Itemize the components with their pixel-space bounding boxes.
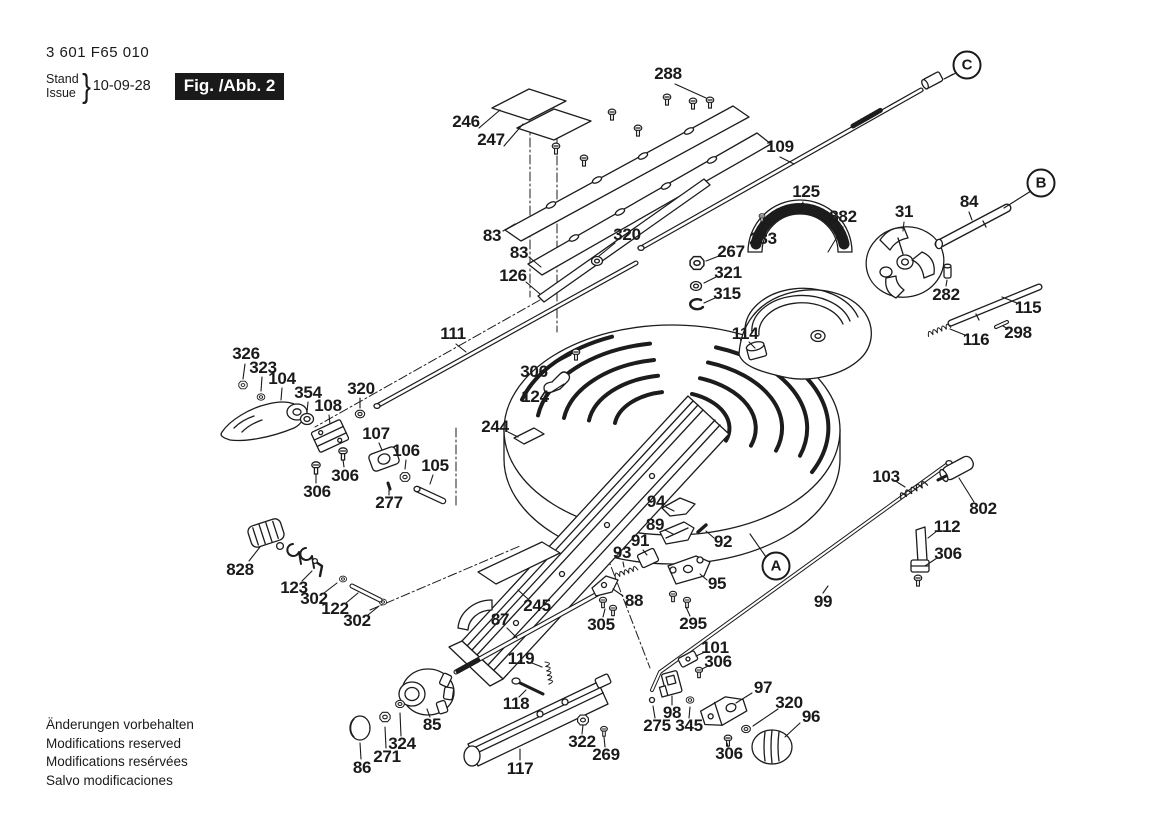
- reference-circle-B: B: [1027, 169, 1056, 198]
- part-callout-306: 306: [520, 362, 547, 382]
- part-callout-320: 320: [613, 225, 640, 245]
- part-callout-302: 302: [343, 611, 370, 631]
- part-callout-99: 99: [814, 592, 832, 612]
- part-callout-306: 306: [331, 466, 358, 486]
- notice-de: Änderungen vorbehalten: [46, 716, 194, 735]
- part-callout-87: 87: [491, 610, 509, 630]
- leader-line: [249, 547, 260, 561]
- leader-line: [307, 402, 308, 412]
- part-callout-83: 83: [483, 226, 501, 246]
- part-callout-306: 306: [715, 744, 742, 764]
- leader-line: [753, 709, 778, 726]
- leader-line: [243, 364, 245, 379]
- part-callout-320: 320: [775, 693, 802, 713]
- part-callout-106: 106: [392, 441, 419, 461]
- figure-label: Fig. /Abb. 2: [175, 73, 285, 100]
- reference-circle-A: A: [762, 552, 791, 581]
- leader-line: [281, 388, 282, 400]
- part-callout-105: 105: [421, 456, 448, 476]
- leader-line: [785, 723, 800, 737]
- notice-fr: Modifications resérvées: [46, 753, 194, 772]
- part-callout-305: 305: [587, 615, 614, 635]
- brace-glyph: }: [82, 67, 91, 105]
- exploded-diagram-artwork: [0, 0, 1169, 826]
- part-callout-115: 115: [1015, 298, 1042, 318]
- title-block: 3 601 F65 010 Stand Issue }10-09-28Fig. …: [46, 44, 284, 103]
- fastener-stack: [690, 257, 704, 310]
- part-callout-345: 345: [675, 716, 702, 736]
- modification-notices: Änderungen vorbehalten Modifications res…: [46, 716, 194, 790]
- part-callout-282: 282: [932, 285, 959, 305]
- part-callout-244: 244: [481, 417, 508, 437]
- part-callout-315: 315: [713, 284, 740, 304]
- part-callout-108: 108: [314, 396, 341, 416]
- part-callout-320: 320: [347, 379, 374, 399]
- part-callout-306: 306: [934, 544, 961, 564]
- leader-line: [360, 743, 361, 759]
- document-part-number: 3 601 F65 010: [46, 44, 284, 61]
- part-callout-321: 321: [714, 263, 741, 283]
- part-callout-104: 104: [268, 369, 295, 389]
- rod-109: [638, 71, 943, 250]
- leader-line: [1004, 191, 1031, 208]
- part-callout-103: 103: [872, 467, 899, 487]
- reference-circle-C: C: [953, 51, 982, 80]
- part-callout-295: 295: [679, 614, 706, 634]
- part-callout-111: 111: [440, 324, 466, 344]
- part-callout-97: 97: [754, 678, 772, 698]
- part-callout-85: 85: [423, 715, 441, 735]
- part-callout-107: 107: [362, 424, 389, 444]
- issue-date: 10-09-28: [93, 78, 151, 94]
- part-callout-109: 109: [766, 137, 793, 157]
- part-callout-96: 96: [802, 707, 820, 727]
- leader-line: [329, 415, 330, 424]
- leader-line: [944, 73, 956, 79]
- part-callout-88: 88: [625, 591, 643, 611]
- part-callout-802: 802: [969, 499, 996, 519]
- part-callout-298: 298: [1004, 323, 1031, 343]
- part-callout-86: 86: [353, 758, 371, 778]
- leader-line: [504, 124, 523, 146]
- part-callout-31: 31: [895, 202, 913, 222]
- part-callout-277: 277: [375, 493, 402, 513]
- parts-diagram-page: 2882462478383126320109125882283318428211…: [0, 0, 1169, 826]
- part-callout-275: 275: [643, 716, 670, 736]
- part-callout-112: 112: [934, 517, 961, 537]
- part-callout-93: 93: [613, 543, 631, 563]
- leader-line: [456, 344, 466, 352]
- part-callout-126: 126: [499, 266, 526, 286]
- part-callout-124: 124: [521, 387, 548, 407]
- notice-en: Modifications reserved: [46, 735, 194, 754]
- part-callout-306: 306: [704, 652, 731, 672]
- part-callout-125: 125: [792, 182, 819, 202]
- part-callout-118: 118: [503, 694, 530, 714]
- part-callout-83: 83: [510, 243, 528, 263]
- part-callout-114: 114: [732, 324, 759, 344]
- leader-line: [261, 377, 262, 391]
- leader-line: [479, 110, 500, 128]
- part-callout-84: 84: [960, 192, 978, 212]
- part-callout-306: 306: [303, 482, 330, 502]
- part-callout-245: 245: [523, 596, 550, 616]
- part-callout-269: 269: [592, 745, 619, 765]
- part-callout-94: 94: [647, 492, 665, 512]
- leader-line: [969, 212, 972, 220]
- part-callout-267: 267: [717, 242, 744, 262]
- leader-line: [675, 84, 706, 98]
- part-callout-246: 246: [452, 112, 479, 132]
- part-callout-117: 117: [507, 759, 534, 779]
- part-callout-283: 283: [749, 229, 776, 249]
- stand-issue-label: Stand Issue: [46, 72, 79, 100]
- leader-line: [613, 589, 623, 596]
- leader-line: [430, 475, 433, 484]
- leader-line: [526, 282, 540, 294]
- leader-line: [400, 713, 401, 736]
- part-callout-95: 95: [708, 574, 726, 594]
- part-callout-324: 324: [388, 734, 415, 754]
- leader-line: [405, 460, 406, 469]
- part-callout-119: 119: [508, 649, 535, 669]
- column-mount: [739, 288, 871, 379]
- part-callout-247: 247: [477, 130, 504, 150]
- part-callout-288: 288: [654, 64, 681, 84]
- part-callout-91: 91: [631, 531, 649, 551]
- leader-line: [385, 727, 386, 748]
- notice-es: Salvo modificaciones: [46, 772, 194, 791]
- part-callout-92: 92: [714, 532, 732, 552]
- part-callout-882: 882: [829, 207, 856, 227]
- part-callout-828: 828: [226, 560, 253, 580]
- part-callout-116: 116: [963, 330, 990, 350]
- leader-line: [379, 443, 382, 450]
